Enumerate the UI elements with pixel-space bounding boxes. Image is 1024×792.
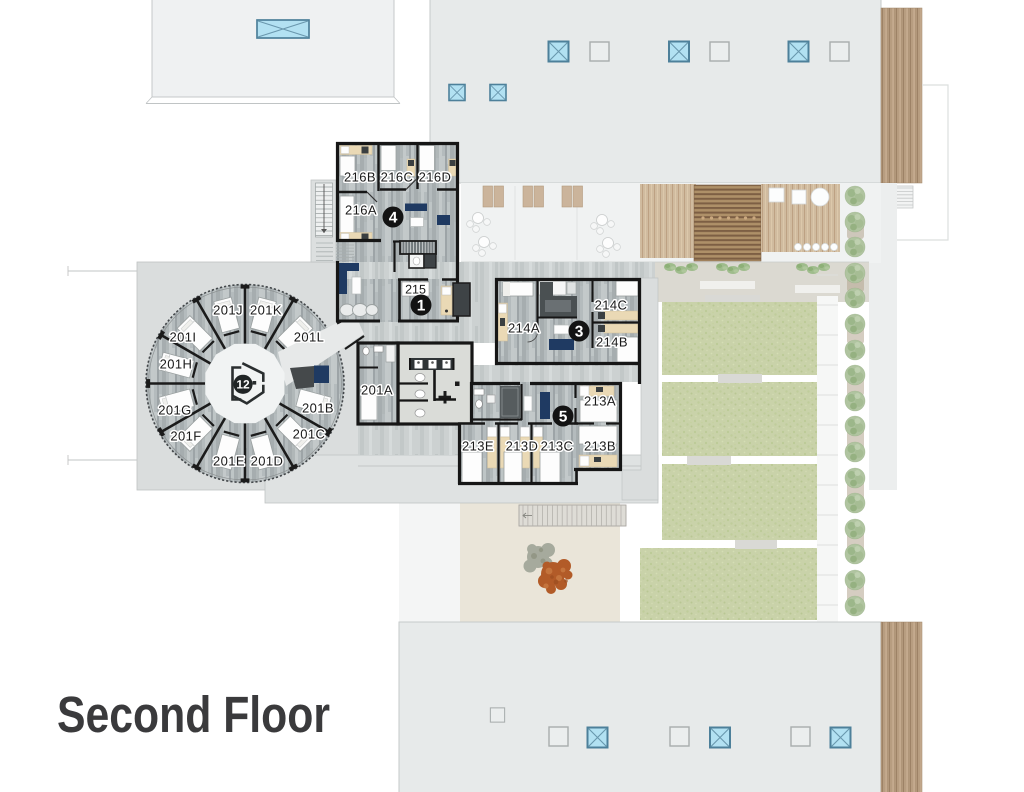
svg-text:201A: 201A: [361, 383, 393, 398]
svg-text:216B: 216B: [344, 170, 376, 185]
svg-text:201E: 201E: [213, 454, 245, 469]
svg-text:4: 4: [389, 210, 398, 227]
svg-text:12: 12: [236, 378, 250, 392]
svg-text:Second Floor: Second Floor: [57, 686, 330, 743]
svg-text:3: 3: [575, 324, 584, 341]
svg-text:214B: 214B: [596, 335, 628, 350]
svg-text:213C: 213C: [541, 439, 574, 454]
svg-text:201D: 201D: [251, 454, 284, 469]
svg-text:214A: 214A: [508, 321, 540, 336]
svg-text:214C: 214C: [595, 298, 628, 313]
svg-text:213A: 213A: [584, 394, 616, 409]
svg-text:201G: 201G: [158, 403, 191, 418]
svg-text:215: 215: [405, 283, 426, 297]
svg-text:213D: 213D: [506, 439, 539, 454]
svg-text:5: 5: [559, 409, 568, 426]
svg-text:201B: 201B: [302, 401, 334, 416]
svg-text:201K: 201K: [250, 303, 282, 318]
svg-text:1: 1: [417, 298, 426, 315]
svg-text:216D: 216D: [419, 170, 452, 185]
svg-text:201J: 201J: [213, 303, 243, 318]
svg-text:216A: 216A: [345, 203, 377, 218]
svg-text:201F: 201F: [170, 429, 201, 444]
svg-text:216C: 216C: [381, 170, 414, 185]
svg-text:201L: 201L: [294, 330, 325, 345]
svg-text:201I: 201I: [170, 330, 197, 345]
svg-text:213B: 213B: [584, 439, 616, 454]
svg-text:201C: 201C: [293, 427, 326, 442]
svg-text:201H: 201H: [160, 357, 193, 372]
svg-text:213E: 213E: [462, 439, 494, 454]
